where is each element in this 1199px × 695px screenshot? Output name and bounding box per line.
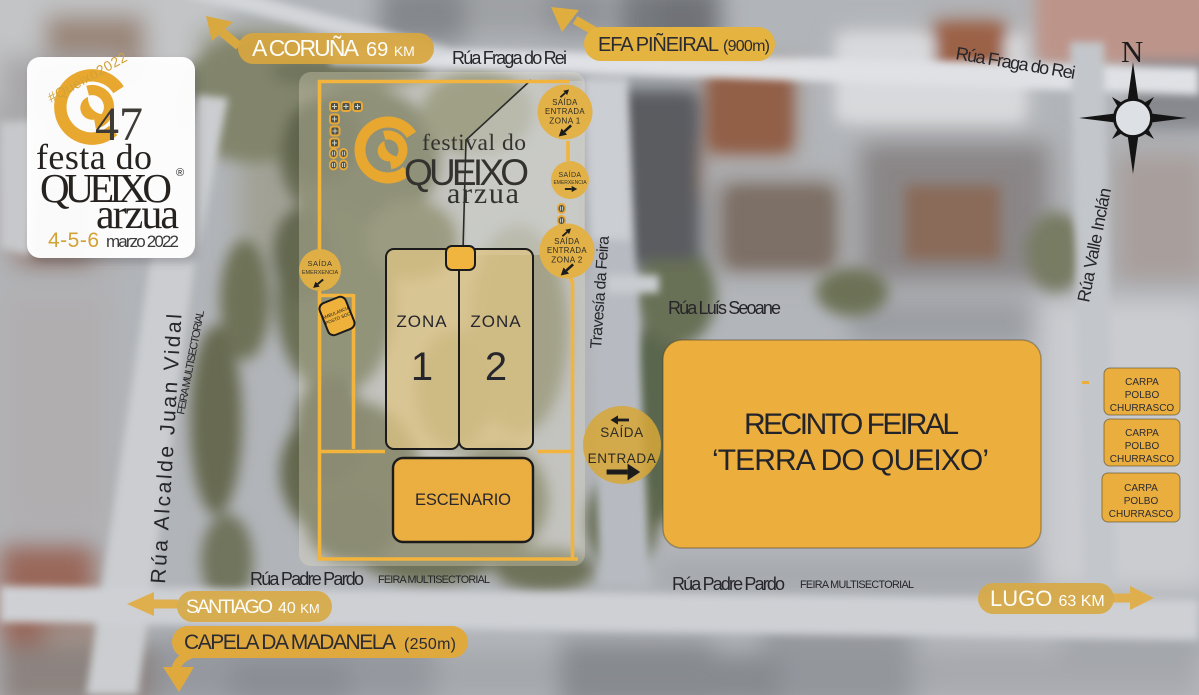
svg-text:EMERXENCIA: EMERXENCIA	[302, 270, 339, 276]
svg-text:SAÍDA: SAÍDA	[558, 170, 581, 179]
svg-text:SAÍDA: SAÍDA	[552, 98, 578, 107]
svg-text:ZONA 2: ZONA 2	[551, 256, 583, 265]
svg-text:marzo 2022: marzo 2022	[106, 232, 179, 251]
svg-text:A CORUÑA: A CORUÑA	[252, 35, 360, 61]
svg-text:ENTRADA: ENTRADA	[547, 246, 587, 255]
svg-text:FEIRA MULTISECTORIAL: FEIRA MULTISECTORIAL	[800, 579, 914, 591]
svg-text:FEIRA MULTISECTORIAL: FEIRA MULTISECTORIAL	[378, 574, 490, 586]
svg-text:EMERXENCIA: EMERXENCIA	[553, 180, 587, 186]
svg-text:Rúa Luís Seoane: Rúa Luís Seoane	[668, 298, 781, 318]
svg-text:arzua: arzua	[447, 177, 519, 210]
svg-text:CHURRASCO: CHURRASCO	[1110, 454, 1175, 465]
svg-text:®: ®	[176, 167, 184, 179]
svg-text:EFA PIÑEIRAL: EFA PIÑEIRAL	[598, 32, 719, 56]
svg-text:(900m): (900m)	[723, 38, 770, 55]
svg-text:ENTRADA: ENTRADA	[545, 107, 585, 116]
svg-text:ENTRADA: ENTRADA	[588, 451, 657, 466]
svg-text:Rúa Fraga do Rei: Rúa Fraga do Rei	[954, 43, 1077, 83]
svg-text:N: N	[1121, 34, 1143, 69]
svg-text:CARPA: CARPA	[1125, 428, 1159, 439]
svg-text:ESCENARIO: ESCENARIO	[415, 491, 511, 509]
svg-text:Rúa Alcalde Juan Vidal: Rúa Alcalde Juan Vidal	[147, 313, 186, 584]
svg-text:69 KM: 69 KM	[366, 39, 415, 61]
svg-text:1: 1	[411, 345, 433, 389]
svg-text:Rúa Valle Inclán: Rúa Valle Inclán	[1073, 186, 1115, 304]
svg-text:SAÍDA: SAÍDA	[307, 259, 332, 268]
svg-text:CAPELA DA MADANELA: CAPELA DA MADANELA	[184, 631, 396, 654]
svg-text:RECINTO FEIRAL: RECINTO FEIRAL	[744, 408, 959, 441]
svg-text:Rúa Padre Pardo: Rúa Padre Pardo	[250, 569, 364, 589]
svg-text:Rúa Padre Pardo: Rúa Padre Pardo	[672, 574, 785, 594]
svg-text:ZONA: ZONA	[470, 312, 521, 331]
svg-text:2: 2	[485, 345, 507, 389]
svg-text:(250m): (250m)	[404, 636, 456, 653]
svg-text:40 KM: 40 KM	[278, 600, 320, 617]
svg-text:SAÍDA: SAÍDA	[600, 425, 644, 440]
svg-text:CHURRASCO: CHURRASCO	[1109, 509, 1174, 520]
svg-text:ZONA: ZONA	[396, 312, 447, 331]
svg-text:4-5-6: 4-5-6	[48, 229, 99, 252]
svg-text:SAÍDA: SAÍDA	[554, 237, 580, 246]
svg-text:POLBO: POLBO	[1125, 441, 1160, 452]
svg-text:POLBO: POLBO	[1124, 496, 1159, 507]
svg-text:CHURRASCO: CHURRASCO	[1110, 403, 1175, 414]
svg-text:SANTIAGO: SANTIAGO	[186, 596, 273, 618]
svg-text:POLBO: POLBO	[1125, 390, 1160, 401]
svg-text:Rúa Fraga do Rei: Rúa Fraga do Rei	[452, 48, 567, 68]
svg-text:‘TERRA DO QUEIXO’: ‘TERRA DO QUEIXO’	[712, 444, 989, 477]
svg-text:ZONA 1: ZONA 1	[549, 117, 581, 126]
svg-text:CARPA: CARPA	[1124, 483, 1158, 494]
svg-text:CARPA: CARPA	[1125, 377, 1159, 388]
